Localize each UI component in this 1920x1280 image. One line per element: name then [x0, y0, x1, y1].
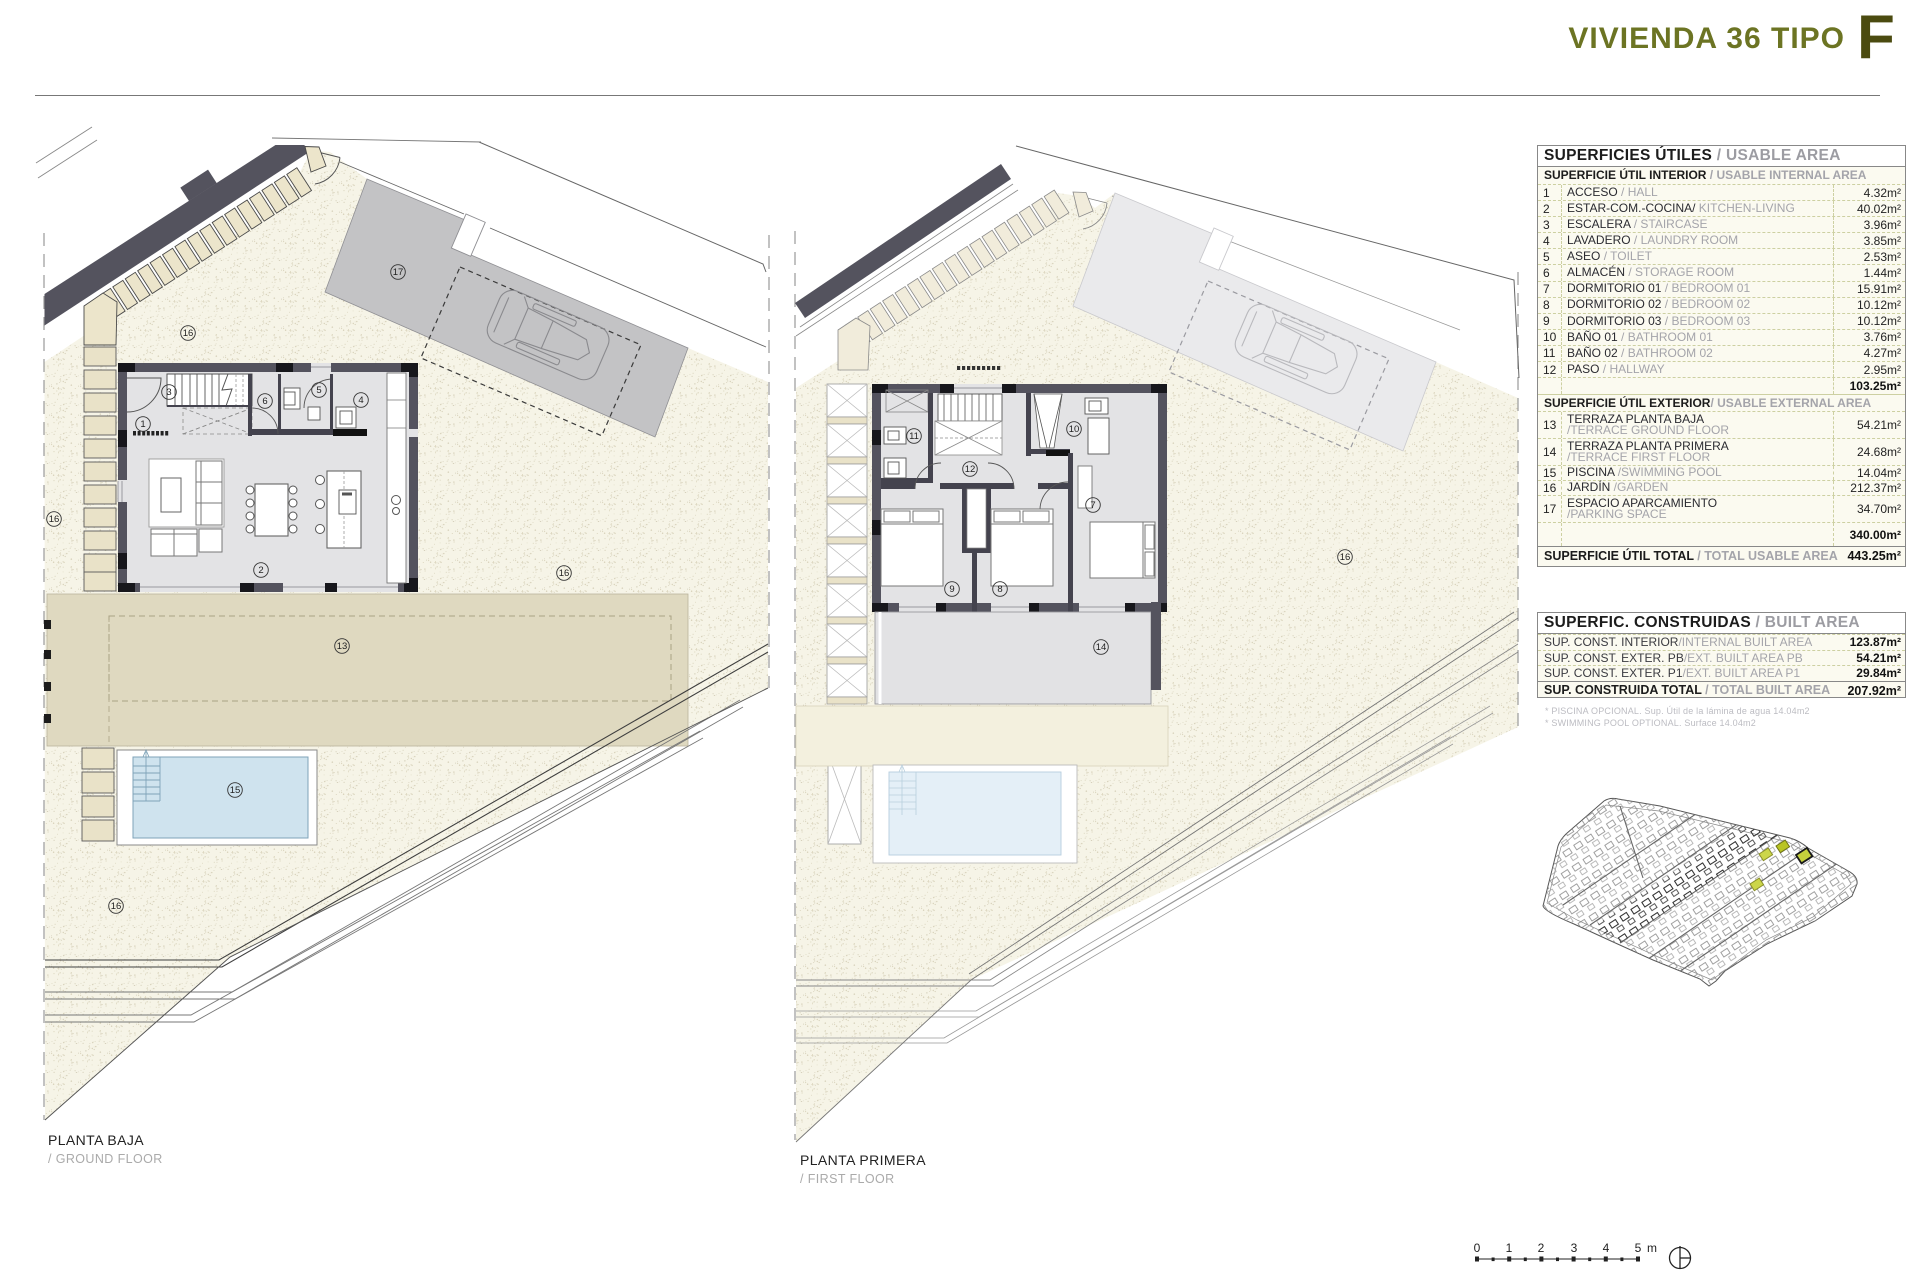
- svg-text:14: 14: [1096, 642, 1107, 653]
- svg-text:m: m: [1647, 1241, 1657, 1255]
- svg-text:3: 3: [166, 387, 171, 398]
- svg-text:5: 5: [1635, 1241, 1642, 1255]
- svg-text:0: 0: [1474, 1241, 1481, 1255]
- svg-text:16: 16: [183, 328, 194, 339]
- svg-text:3: 3: [1571, 1241, 1578, 1255]
- svg-text:7: 7: [1090, 500, 1095, 511]
- svg-text:16: 16: [111, 901, 122, 912]
- svg-text:16: 16: [559, 568, 570, 579]
- svg-text:8: 8: [997, 584, 1002, 595]
- svg-text:5: 5: [316, 385, 321, 396]
- svg-text:15: 15: [230, 785, 241, 796]
- svg-text:10: 10: [1069, 424, 1080, 435]
- svg-text:12: 12: [965, 464, 976, 475]
- svg-text:17: 17: [393, 267, 404, 278]
- svg-text:4: 4: [358, 395, 363, 406]
- svg-text:2: 2: [258, 565, 263, 576]
- svg-text:1: 1: [1506, 1241, 1513, 1255]
- svg-text:6: 6: [262, 396, 267, 407]
- svg-text:1: 1: [140, 419, 145, 430]
- svg-text:16: 16: [49, 514, 60, 525]
- svg-text:2: 2: [1538, 1241, 1545, 1255]
- svg-text:13: 13: [337, 641, 348, 652]
- svg-text:9: 9: [949, 584, 954, 595]
- svg-text:11: 11: [909, 431, 919, 442]
- svg-text:16: 16: [1340, 552, 1351, 563]
- svg-text:4: 4: [1603, 1241, 1610, 1255]
